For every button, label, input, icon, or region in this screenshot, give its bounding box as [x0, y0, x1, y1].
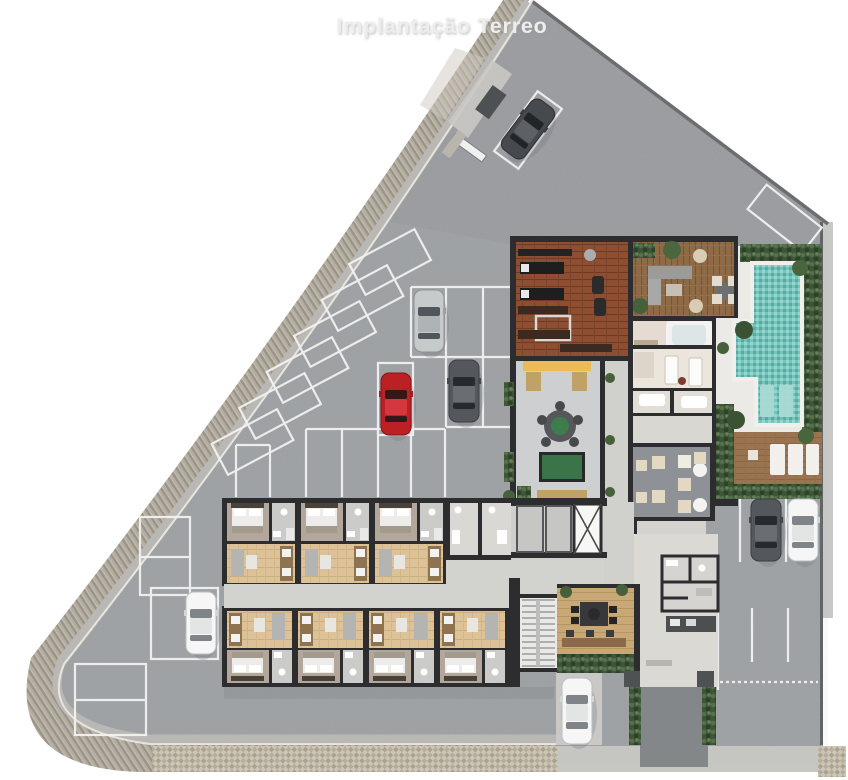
svg-text:Implantação Terreo: Implantação Terreo	[336, 14, 547, 38]
